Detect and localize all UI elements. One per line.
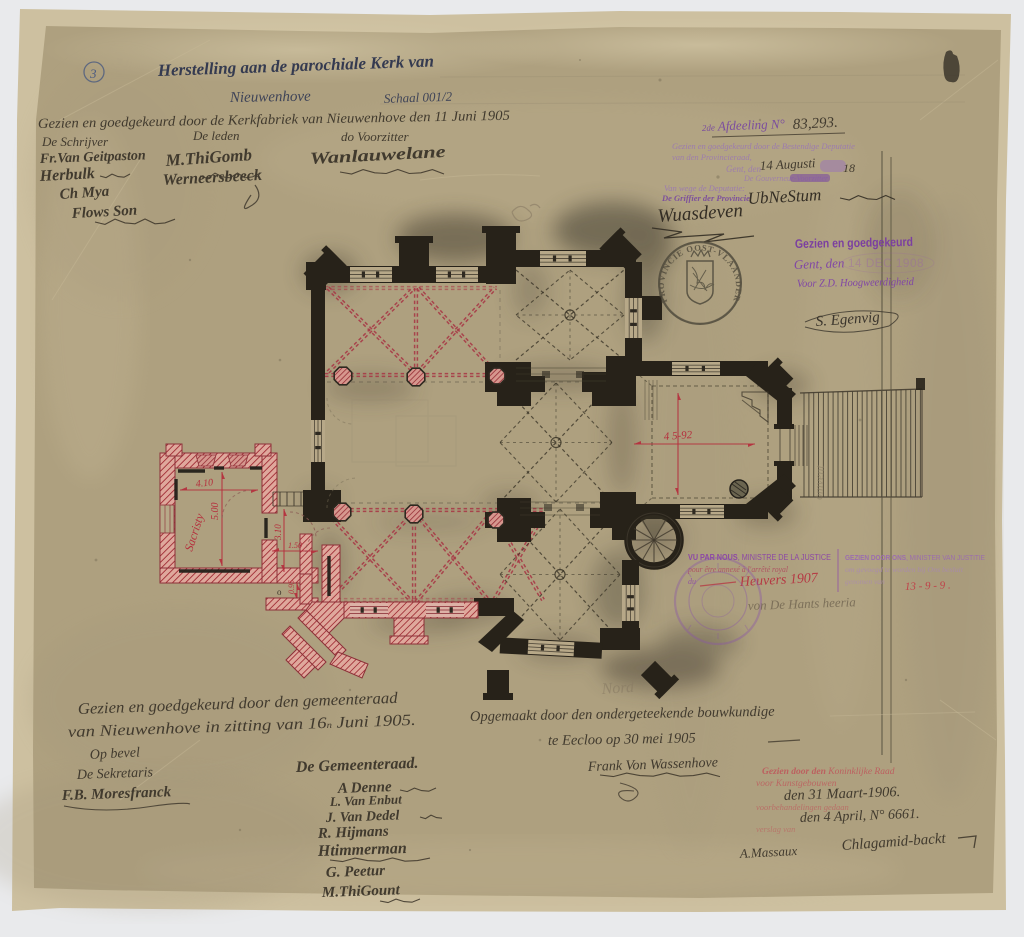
svg-text:du: du bbox=[688, 577, 696, 586]
svg-text:3: 3 bbox=[89, 66, 97, 81]
svg-text:A.Massaux: A.Massaux bbox=[738, 843, 797, 861]
svg-text:Gezien en goedgekeurd: Gezien en goedgekeurd bbox=[795, 235, 913, 251]
svg-text:J. Van Dedel: J. Van Dedel bbox=[325, 808, 400, 826]
svg-text:4.10: 4.10 bbox=[195, 477, 214, 490]
svg-text:3.10: 3.10 bbox=[273, 524, 283, 541]
svg-text:M.ThiGount: M.ThiGount bbox=[321, 882, 401, 901]
svg-text:te Eecloo op 30 mei 1905: te Eecloo op 30 mei 1905 bbox=[548, 730, 696, 749]
svg-text:Van wege de Deputatie:: Van wege de Deputatie: bbox=[664, 183, 745, 193]
svg-text:Herbulk: Herbulk bbox=[38, 165, 95, 185]
svg-text:om gevoegd te worden bij Ons b: om gevoegd te worden bij Ons besluit bbox=[845, 565, 964, 574]
svg-text:verslag van: verslag van bbox=[756, 824, 795, 834]
svg-text:Gent, den: Gent, den bbox=[794, 255, 845, 272]
svg-text:do Voorzitter: do Voorzitter bbox=[341, 129, 409, 144]
svg-text:14 Augusti: 14 Augusti bbox=[759, 155, 816, 173]
svg-text:omvent: omvent bbox=[811, 464, 827, 500]
svg-text:Gent, den: Gent, den bbox=[726, 164, 761, 174]
svg-text:4 5-92: 4 5-92 bbox=[663, 429, 693, 443]
svg-text:Voor Z.D. Hoogweerdigheid: Voor Z.D. Hoogweerdigheid bbox=[797, 276, 915, 290]
svg-text:GEZIEN DOOR ONS, MINISTER VAN: GEZIEN DOOR ONS, MINISTER VAN JUSTITIE bbox=[845, 553, 985, 562]
svg-text:14 DEC 1908: 14 DEC 1908 bbox=[848, 258, 924, 270]
svg-text:0.95: 0.95 bbox=[287, 580, 296, 594]
svg-text:van den Provincieraad,: van den Provincieraad, bbox=[672, 152, 752, 162]
svg-text:Nord: Nord bbox=[600, 679, 635, 698]
svg-text:Gezien door den Koninklijke Ra: Gezien door den Koninklijke Raad bbox=[762, 767, 895, 777]
svg-text:UbNeStum: UbNeStum bbox=[747, 185, 822, 208]
svg-text:L. Van Enbut: L. Van Enbut bbox=[329, 791, 403, 809]
svg-text:genomen van: genomen van bbox=[845, 577, 885, 586]
svg-text:2de Afdeeling N°: 2de Afdeeling N° bbox=[702, 116, 785, 134]
svg-text:De Sekretaris: De Sekretaris bbox=[76, 765, 154, 783]
svg-text:Htimmerman: Htimmerman bbox=[317, 840, 408, 860]
svg-text:VU PAR NOUS, MINISTRE DE LA JU: VU PAR NOUS, MINISTRE DE LA JUSTICE bbox=[688, 553, 831, 562]
svg-text:G. Peetur: G. Peetur bbox=[326, 863, 386, 881]
svg-text:Op bevel: Op bevel bbox=[89, 745, 140, 763]
svg-text:Gezien en goedgekeurd door de: Gezien en goedgekeurd door de Bestendige… bbox=[672, 141, 855, 151]
svg-text:Nieuwenhove: Nieuwenhove bbox=[229, 89, 311, 106]
svg-text:De Schrijver: De Schrijver bbox=[41, 134, 109, 149]
svg-text:De leden: De leden bbox=[192, 128, 240, 143]
svg-text:R. Hijmans: R. Hijmans bbox=[317, 824, 390, 843]
svg-text:1.50: 1.50 bbox=[288, 541, 302, 550]
svg-text:83,293.: 83,293. bbox=[792, 115, 838, 133]
svg-text:o: o bbox=[277, 587, 282, 597]
svg-text:5.00: 5.00 bbox=[210, 503, 221, 521]
svg-text:18: 18 bbox=[843, 161, 855, 175]
svg-text:13 - 9 - 9 .: 13 - 9 - 9 . bbox=[905, 579, 951, 593]
